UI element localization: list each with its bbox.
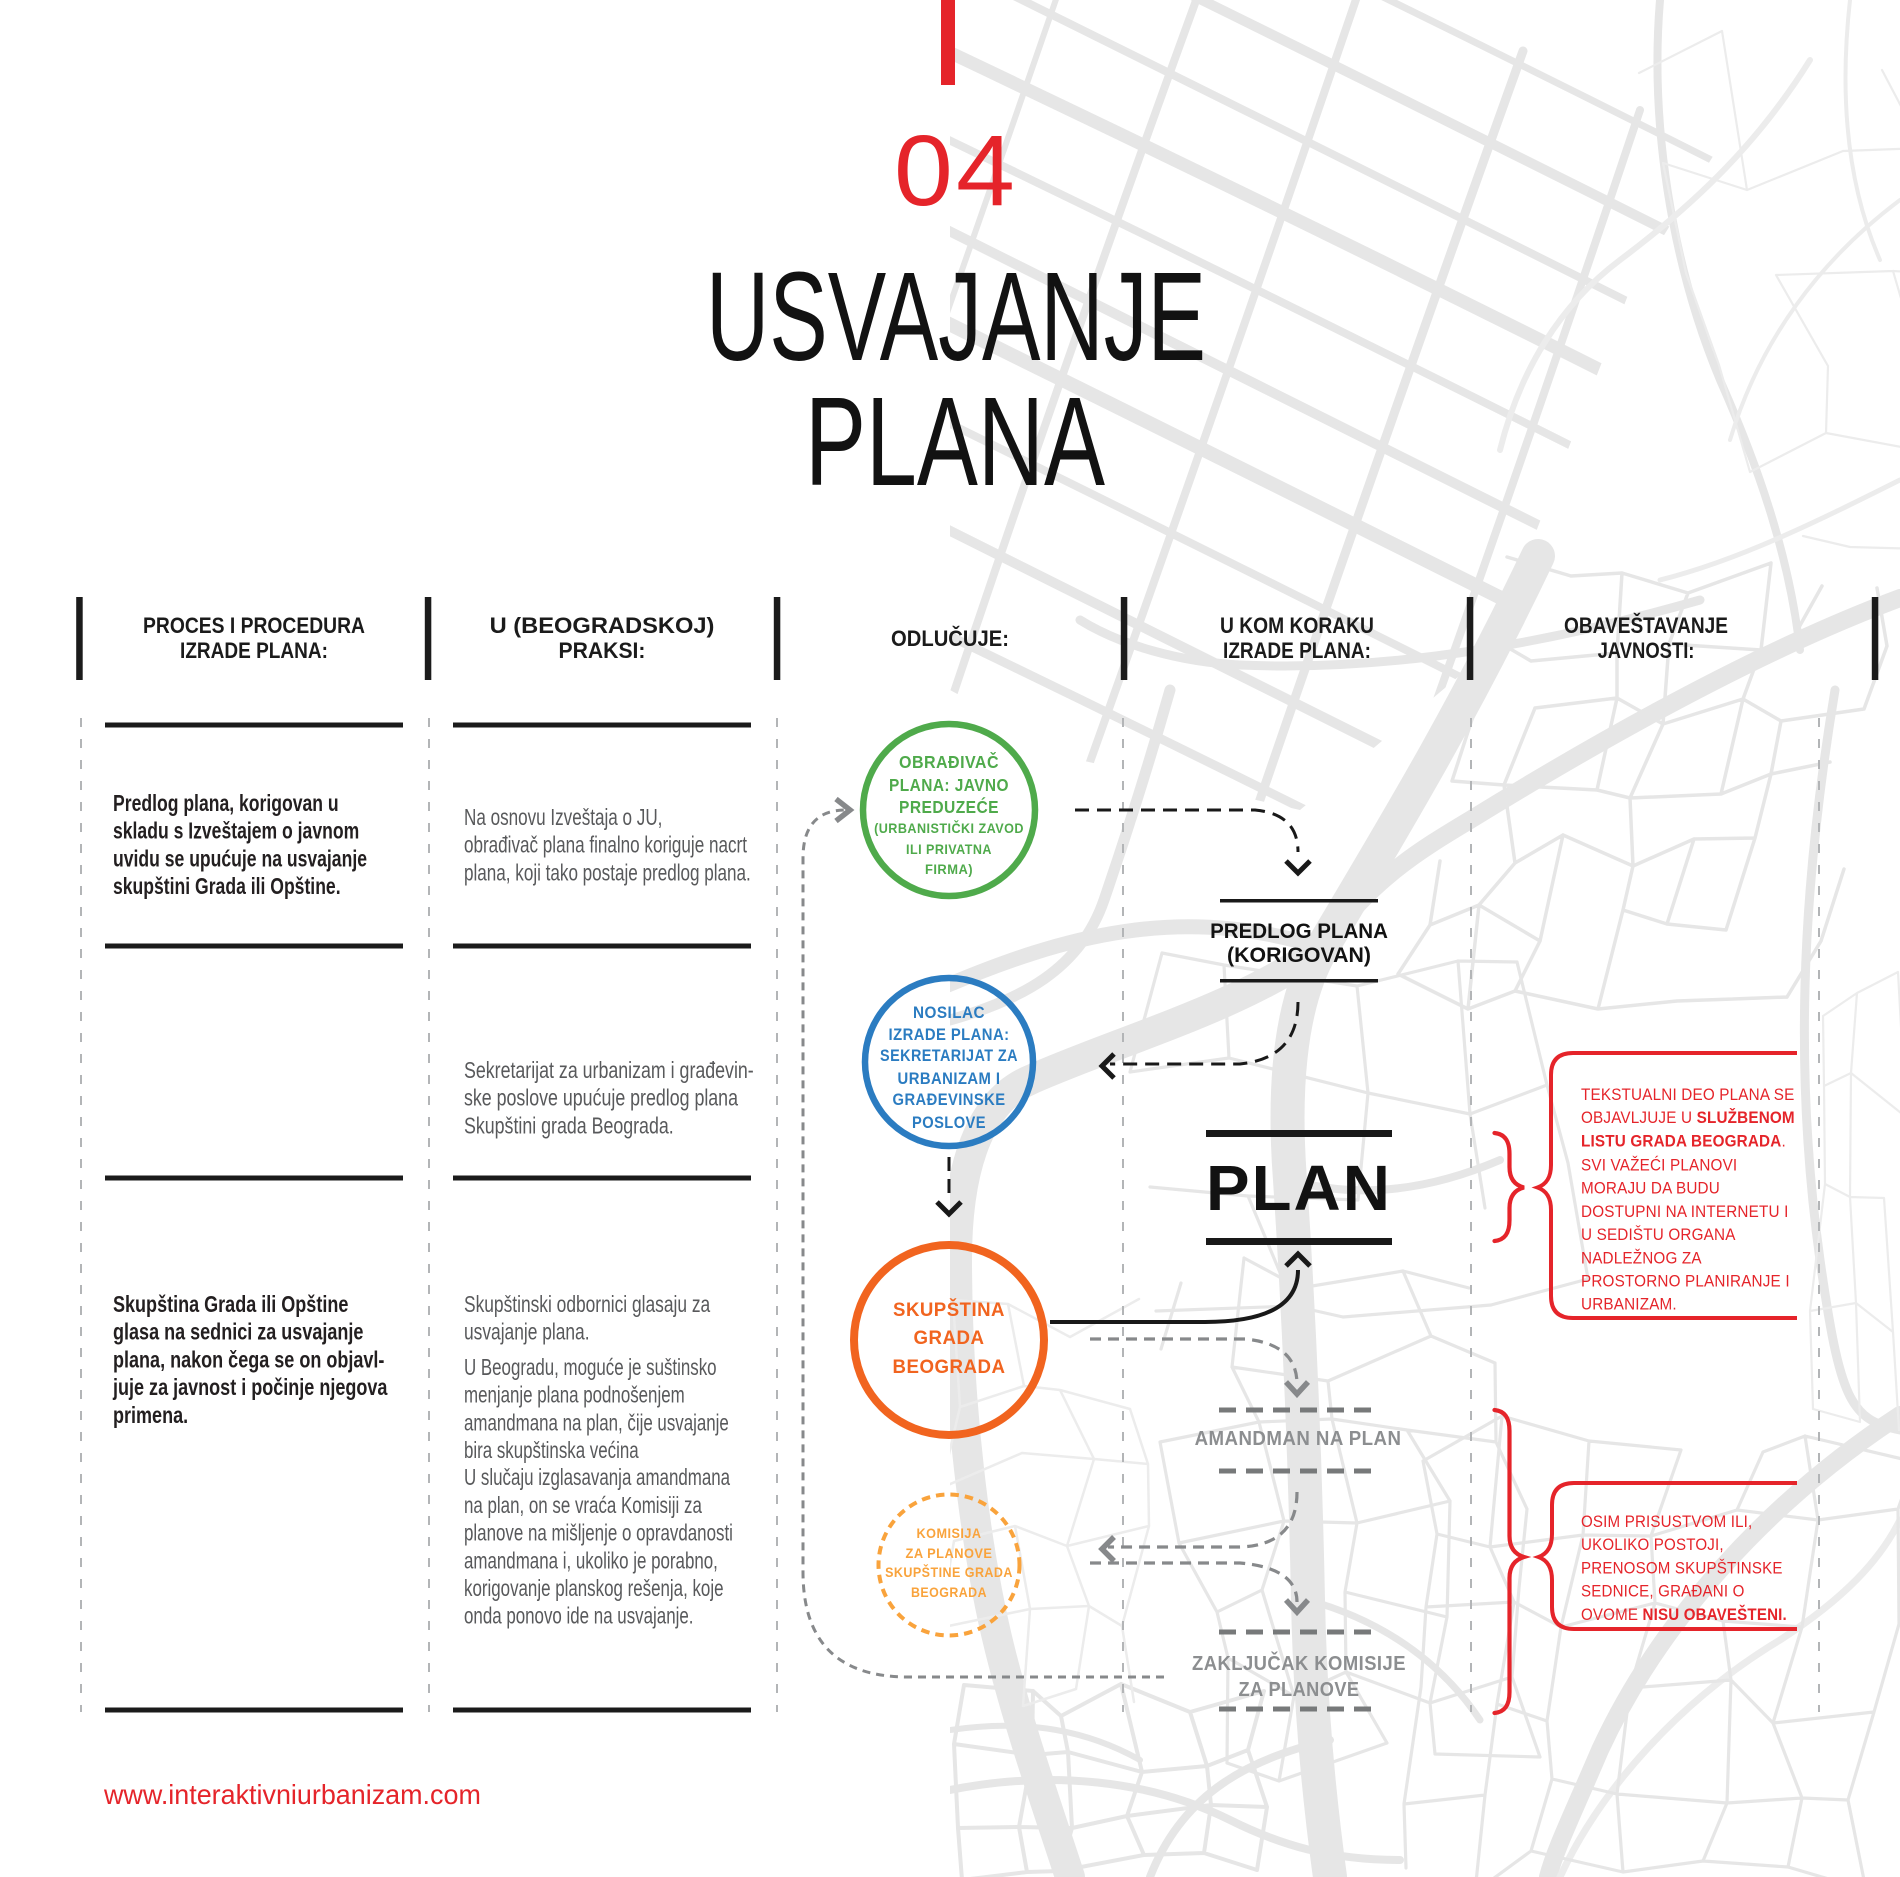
svg-text:PLAN: PLAN <box>1206 1152 1392 1224</box>
svg-text:MORAJU DA BUDU: MORAJU DA BUDU <box>1581 1179 1720 1198</box>
svg-text:PROSTORNO PLANIRANJE I: PROSTORNO PLANIRANJE I <box>1581 1272 1790 1291</box>
svg-text:Skupštini grada Beograda.: Skupštini grada Beograda. <box>464 1113 674 1139</box>
svg-text:OBAVEŠTAVANJE: OBAVEŠTAVANJE <box>1564 613 1728 639</box>
svg-text:SKUPŠTINA: SKUPŠTINA <box>893 1299 1005 1320</box>
svg-text:plana, nakon čega se on objavl: plana, nakon čega se on objavl- <box>113 1347 384 1373</box>
svg-text:FIRMA): FIRMA) <box>925 862 973 878</box>
svg-text:Predlog plana, korigovan u: Predlog plana, korigovan u <box>113 791 339 817</box>
svg-text:skupštini Grada ili Opštine.: skupštini Grada ili Opštine. <box>113 874 341 900</box>
svg-text:PREDUZEĆE: PREDUZEĆE <box>899 797 999 817</box>
svg-text:na plan, on se vraća Komisiji: na plan, on se vraća Komisiji za <box>464 1492 702 1518</box>
svg-text:primena.: primena. <box>113 1403 188 1429</box>
svg-text:(KORIGOVAN): (KORIGOVAN) <box>1227 944 1371 967</box>
svg-text:JAVNOSTI:: JAVNOSTI: <box>1598 638 1695 663</box>
svg-text:juje za javnost i počinje njeg: juje za javnost i počinje njegova <box>112 1375 388 1401</box>
svg-text:SVI VAŽEĆI PLANOVI: SVI VAŽEĆI PLANOVI <box>1581 1155 1737 1175</box>
svg-text:glasa na sednici za usvajanje: glasa na sednici za usvajanje <box>113 1320 363 1346</box>
svg-text:BEOGRADA: BEOGRADA <box>893 1356 1006 1377</box>
svg-text:ODLUČUJE:: ODLUČUJE: <box>891 625 1009 651</box>
svg-text:bira skupštinska većina: bira skupštinska većina <box>464 1437 639 1463</box>
svg-text:Sekretarijat za urbanizam i gr: Sekretarijat za urbanizam i građevin- <box>464 1058 754 1084</box>
svg-text:UKOLIKO POSTOJI,: UKOLIKO POSTOJI, <box>1581 1535 1724 1554</box>
svg-text:PRAKSI:: PRAKSI: <box>559 637 646 663</box>
svg-text:TEKSTUALNI DEO PLANA SE: TEKSTUALNI DEO PLANA SE <box>1581 1085 1795 1104</box>
svg-text:ZA PLANOVE: ZA PLANOVE <box>1239 1679 1360 1701</box>
svg-text:ske poslove upućuje predlog pl: ske poslove upućuje predlog plana <box>464 1085 738 1111</box>
svg-text:BEOGRADA: BEOGRADA <box>911 1585 987 1601</box>
svg-text:U SEDIŠTU ORGANA: U SEDIŠTU ORGANA <box>1581 1224 1736 1244</box>
svg-text:usvajanje plana.: usvajanje plana. <box>464 1319 590 1345</box>
svg-text:OVOME NISU OBAVEŠTENI.: OVOME NISU OBAVEŠTENI. <box>1581 1604 1787 1624</box>
svg-text:U (BEOGRADSKOJ): U (BEOGRADSKOJ) <box>490 613 715 638</box>
svg-text:SKUPŠTINE GRADA: SKUPŠTINE GRADA <box>885 1565 1013 1581</box>
svg-text:04: 04 <box>894 115 1018 227</box>
svg-text:PLANA: PLANA <box>805 372 1105 513</box>
svg-text:Skupština Grada ili Opštine: Skupština Grada ili Opštine <box>113 1292 348 1318</box>
svg-text:(URBANISTIČKI ZAVOD: (URBANISTIČKI ZAVOD <box>874 820 1024 836</box>
svg-text:skladu s Izveštajem o javnom: skladu s Izveštajem o javnom <box>113 818 359 844</box>
svg-text:OBJAVLJUJE U SLUŽBENOM: OBJAVLJUJE U SLUŽBENOM <box>1581 1107 1795 1127</box>
svg-text:IZRADE PLANA:: IZRADE PLANA: <box>180 639 328 664</box>
svg-text:www.interaktivniurbanizam.com: www.interaktivniurbanizam.com <box>103 1779 481 1811</box>
svg-text:amandmana na plan, čije usvaja: amandmana na plan, čije usvajanje <box>464 1410 729 1436</box>
svg-text:NOSILAC: NOSILAC <box>913 1003 985 1022</box>
svg-text:IZRADE PLANA:: IZRADE PLANA: <box>889 1026 1010 1044</box>
svg-text:SEDNICE, GRAĐANI O: SEDNICE, GRAĐANI O <box>1581 1582 1745 1601</box>
svg-text:PLANA: JAVNO: PLANA: JAVNO <box>889 775 1009 795</box>
svg-text:obrađivač plana finalno korigu: obrađivač plana finalno koriguje nacrt <box>464 832 747 858</box>
svg-text:ZAKLJUČAK KOMISIJE: ZAKLJUČAK KOMISIJE <box>1192 1652 1406 1675</box>
svg-text:IZRADE PLANA:: IZRADE PLANA: <box>1223 639 1371 664</box>
svg-text:USVAJANJE: USVAJANJE <box>706 246 1206 386</box>
svg-text:URBANIZAM.: URBANIZAM. <box>1581 1295 1677 1314</box>
svg-text:GRAĐEVINSKE: GRAĐEVINSKE <box>893 1091 1006 1109</box>
svg-text:PROCES I PROCEDURA: PROCES I PROCEDURA <box>143 614 365 639</box>
svg-text:PREDLOG PLANA: PREDLOG PLANA <box>1210 920 1388 943</box>
svg-text:OSIM PRISUSTVOM ILI,: OSIM PRISUSTVOM ILI, <box>1581 1512 1752 1531</box>
svg-text:KOMISIJA: KOMISIJA <box>917 1526 982 1541</box>
svg-text:onda ponovo ide na usvajanje.: onda ponovo ide na usvajanje. <box>464 1603 693 1629</box>
svg-text:plana, koji tako postaje predl: plana, koji tako postaje predlog plana. <box>464 860 751 886</box>
svg-text:AMANDMAN NA PLAN: AMANDMAN NA PLAN <box>1195 1427 1402 1450</box>
svg-text:LISTU GRADA BEOGRADA.: LISTU GRADA BEOGRADA. <box>1581 1132 1786 1151</box>
svg-text:ZA PLANOVE: ZA PLANOVE <box>906 1546 993 1561</box>
svg-text:amandmana i, ukoliko je porabn: amandmana i, ukoliko je porabno, <box>464 1548 718 1574</box>
svg-text:URBANIZAM I: URBANIZAM I <box>898 1070 1001 1088</box>
svg-text:U KOM KORAKU: U KOM KORAKU <box>1220 614 1374 639</box>
svg-text:SEKRETARIJAT ZA: SEKRETARIJAT ZA <box>880 1047 1018 1065</box>
svg-text:DOSTUPNI NA INTERNETU I: DOSTUPNI NA INTERNETU I <box>1581 1202 1788 1221</box>
svg-text:Na osnovu Izveštaja o JU,: Na osnovu Izveštaja o JU, <box>464 804 662 830</box>
svg-text:U slučaju izglasavanja amandma: U slučaju izglasavanja amandmana <box>464 1465 731 1491</box>
svg-text:PRENOSOM SKUPŠTINSKE: PRENOSOM SKUPŠTINSKE <box>1581 1558 1783 1578</box>
svg-text:POSLOVE: POSLOVE <box>912 1114 986 1132</box>
svg-text:GRADA: GRADA <box>914 1327 985 1348</box>
svg-text:planove na mišljenje o opravda: planove na mišljenje o opravdanosti <box>464 1520 733 1546</box>
svg-text:korigovanje planskog rešenja,: korigovanje planskog rešenja, koje <box>464 1575 724 1601</box>
svg-text:NADLEŽNOG ZA: NADLEŽNOG ZA <box>1581 1248 1702 1268</box>
svg-text:uvidu se upućuje na usvajanje: uvidu se upućuje na usvajanje <box>113 846 367 872</box>
svg-text:menjanje plana podnošenjem: menjanje plana podnošenjem <box>464 1382 685 1408</box>
svg-text:U Beogradu, moguće je suštinsk: U Beogradu, moguće je suštinsko <box>464 1354 717 1380</box>
svg-text:ILI PRIVATNA: ILI PRIVATNA <box>906 841 992 857</box>
svg-text:Skupštinski odbornici glasaju: Skupštinski odbornici glasaju za <box>464 1292 711 1318</box>
svg-text:OBRAĐIVAČ: OBRAĐIVAČ <box>899 752 999 772</box>
